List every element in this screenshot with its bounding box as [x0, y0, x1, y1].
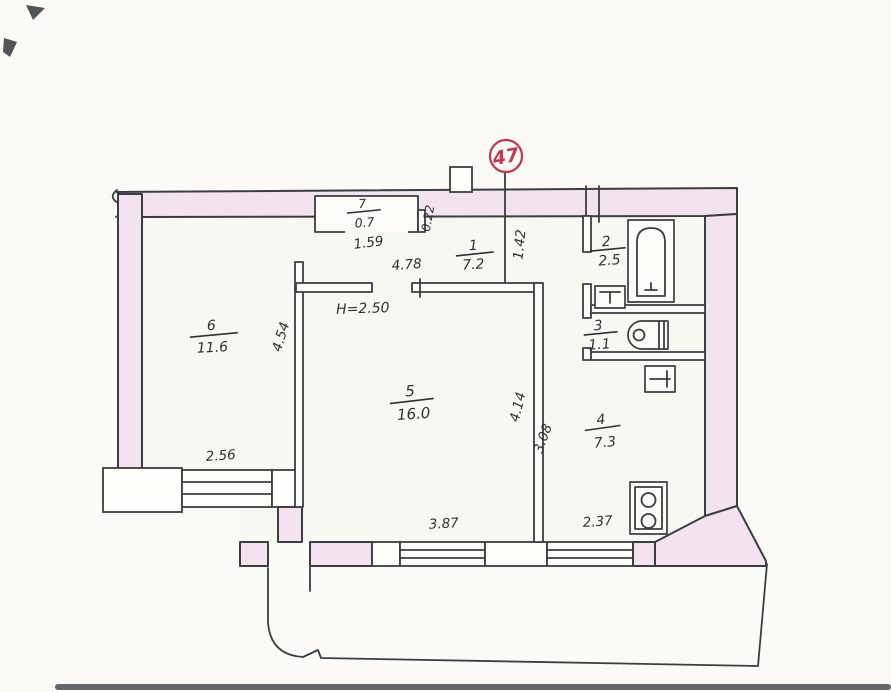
bottom-wall-segment — [240, 542, 268, 566]
room-number: 2 — [601, 234, 611, 251]
dim-hall-depth: 1.42 — [510, 229, 529, 261]
room-area: 1.1 — [588, 336, 611, 354]
window-pier — [485, 542, 547, 566]
room-area: 2.5 — [598, 252, 621, 270]
bath-sink-icon — [595, 286, 625, 308]
room6-window — [182, 470, 272, 507]
floorplan-drawing: 47 1 7.2 2 2.5 3 1.1 4 7.3 5 16.0 6 11.6… — [0, 0, 891, 692]
window-pier — [372, 542, 400, 566]
room-number: 4 — [596, 412, 606, 429]
left-outer-wall — [118, 194, 142, 470]
wc-kitchen-divider — [591, 352, 705, 360]
room-number: 1 — [468, 238, 478, 254]
room-area: 7.3 — [593, 434, 617, 452]
right-outer-wall — [705, 214, 737, 516]
scan-artifact-mark — [3, 38, 17, 57]
room6-partition — [295, 262, 303, 507]
room5-window — [400, 542, 485, 566]
room-number: 3 — [593, 318, 603, 335]
stove-icon — [630, 482, 667, 534]
bath-partition — [583, 216, 591, 252]
ceiling-height-note: Н=2.50 — [336, 300, 390, 318]
kitchen-window — [547, 542, 633, 566]
dim-kitchen-width: 2.37 — [582, 513, 614, 531]
dim-room6-window: 2.56 — [205, 447, 236, 465]
window-pier — [103, 468, 182, 512]
room5-top-wall — [412, 283, 542, 292]
room-area: 0.7 — [354, 214, 375, 230]
room5-top-wall — [296, 283, 372, 292]
toilet-icon — [628, 321, 668, 349]
scan-edge-shadow — [55, 684, 891, 690]
wall-connector — [278, 507, 302, 542]
room-area: 11.6 — [197, 339, 229, 357]
scanned-floorplan-page: 47 1 7.2 2 2.5 3 1.1 4 7.3 5 16.0 6 11.6… — [0, 0, 891, 692]
room-area: 16.0 — [396, 404, 431, 424]
apartment-stamp: 47 — [490, 140, 522, 172]
kitchen-sink-icon — [645, 366, 675, 392]
bottom-wall-segment — [310, 542, 372, 566]
scan-artifact-mark — [26, 5, 45, 20]
dim-room5-width: 3.87 — [428, 515, 459, 533]
room-area: 7.2 — [462, 256, 485, 273]
dim-hall-width: 4.78 — [391, 256, 422, 274]
balcony-outline — [268, 564, 767, 666]
top-wall-niche — [450, 167, 472, 192]
room-number: 7 — [358, 196, 367, 212]
bath-partition — [583, 284, 591, 318]
room5-right-wall — [534, 283, 543, 542]
room-number: 6 — [206, 318, 216, 334]
bathtub-icon — [628, 220, 674, 302]
bottom-wall-segment — [633, 542, 655, 566]
room-number: 5 — [405, 382, 416, 401]
